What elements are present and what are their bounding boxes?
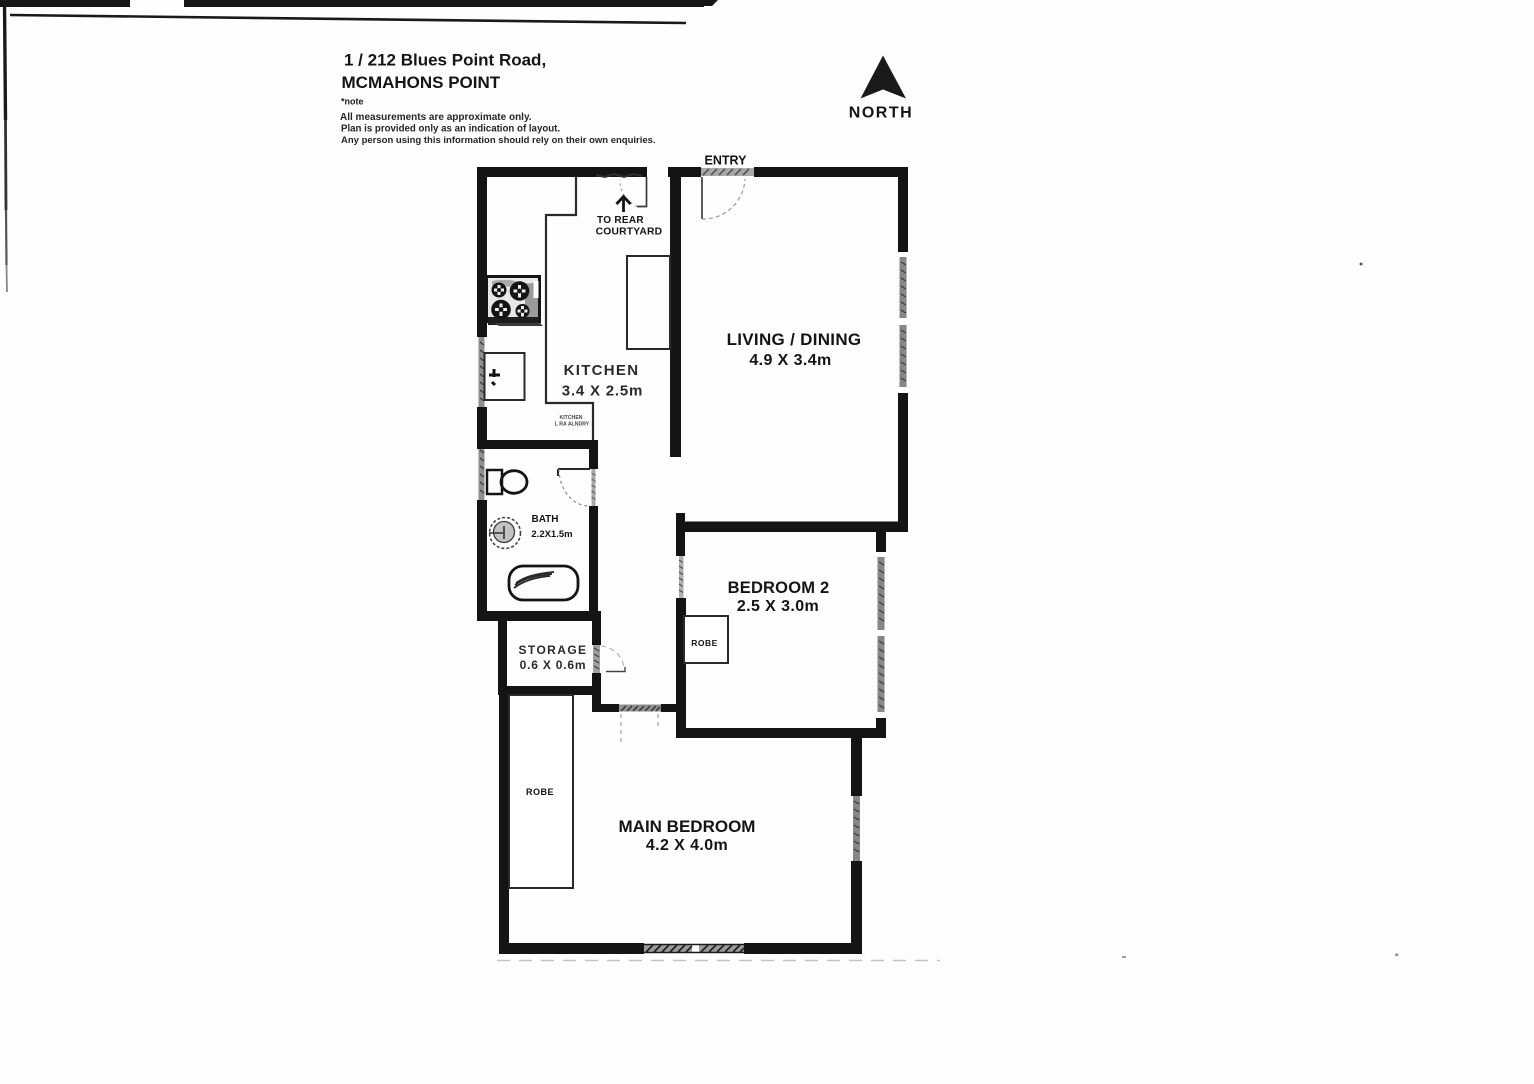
svg-text:2.2X1.5m: 2.2X1.5m xyxy=(531,529,572,540)
svg-text:0.6 X 0.6m: 0.6 X 0.6m xyxy=(520,658,587,672)
svg-text:STORAGE: STORAGE xyxy=(519,643,588,657)
svg-text:4.2 X 4.0m: 4.2 X 4.0m xyxy=(646,837,728,854)
svg-text:4.9 X 3.4m: 4.9 X 3.4m xyxy=(749,352,831,369)
svg-text:Plan is provided only as an in: Plan is provided only as an indication o… xyxy=(341,124,560,135)
svg-text:ROBE: ROBE xyxy=(691,638,718,648)
svg-text:COURTYARD: COURTYARD xyxy=(596,227,663,238)
svg-text:BEDROOM 2: BEDROOM 2 xyxy=(728,579,830,597)
svg-text:NORTH: NORTH xyxy=(849,105,913,122)
svg-text:LIVING / DINING: LIVING / DINING xyxy=(727,330,862,349)
svg-text:KITCHEN: KITCHEN xyxy=(559,415,582,421)
svg-text:All measurements are approxima: All measurements are approximate only. xyxy=(340,112,532,123)
svg-text:L RA ALNDRY: L RA ALNDRY xyxy=(555,422,590,428)
svg-text:TO REAR: TO REAR xyxy=(597,215,644,226)
svg-text:KITCHEN: KITCHEN xyxy=(564,362,640,379)
svg-text:2.5 X 3.0m: 2.5 X 3.0m xyxy=(737,598,819,615)
svg-text:1 / 212 Blues Point Road,: 1 / 212 Blues Point Road, xyxy=(344,51,546,70)
svg-text:3.4 X 2.5m: 3.4 X 2.5m xyxy=(562,383,643,400)
svg-text:*note: *note xyxy=(341,97,364,107)
svg-text:Any person using this informat: Any person using this information should… xyxy=(341,135,656,146)
svg-text:BATH: BATH xyxy=(531,514,558,525)
svg-text:ROBE: ROBE xyxy=(526,787,554,797)
svg-text:MAIN BEDROOM: MAIN BEDROOM xyxy=(619,817,756,836)
svg-text:ENTRY: ENTRY xyxy=(705,154,748,168)
svg-text:MCMAHONS POINT: MCMAHONS POINT xyxy=(342,73,501,92)
